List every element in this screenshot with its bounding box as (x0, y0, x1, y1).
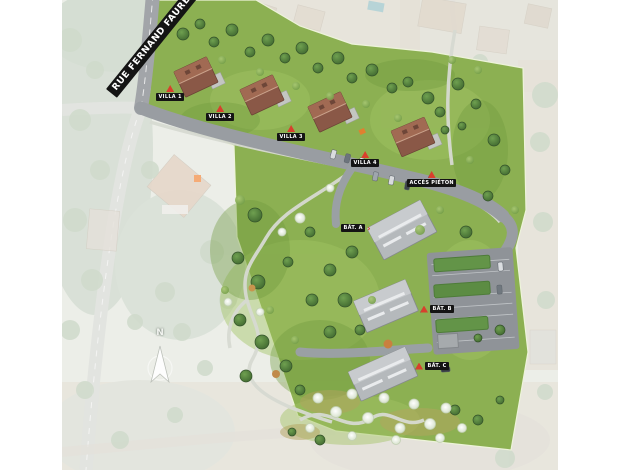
compass-north-label: N (142, 328, 178, 338)
marker-label: ACCÈS PIÉTON (407, 179, 456, 187)
arrow-right-icon: › (367, 226, 370, 231)
marker-villa-1: VILLA 1 (156, 85, 184, 101)
marker-label: BÂT. A (341, 224, 365, 232)
developer-pin-icon (415, 363, 423, 370)
developer-pin-icon (420, 306, 428, 313)
marker-label: VILLA 4 (351, 159, 379, 167)
marker-villa-4: VILLA 4 (351, 151, 379, 167)
developer-pin-icon (166, 85, 174, 92)
marker-label: BÂT. C (425, 362, 449, 370)
aerial-masterplan-image: RUE FERNAND FAURÉ N VILLA 1 VILLA 2 VILL… (0, 0, 640, 470)
developer-pin-icon (428, 171, 436, 178)
marker-label: VILLA 3 (277, 133, 305, 141)
marker-bat-b: BÂT. B (420, 305, 454, 313)
marker-label: VILLA 1 (156, 93, 184, 101)
marker-label: BÂT. B (430, 305, 454, 313)
compass: N (142, 328, 178, 338)
marker-villa-2: VILLA 2 (206, 105, 234, 121)
developer-pin-icon (287, 125, 295, 132)
marker-bat-a: BÂT. A › (341, 224, 371, 232)
developer-pin-icon (361, 151, 369, 158)
site-plan-rendering (0, 0, 640, 470)
marker-villa-3: VILLA 3 (277, 125, 305, 141)
marker-acces-pieton: ACCÈS PIÉTON (407, 171, 456, 187)
developer-pin-icon (216, 105, 224, 112)
marker-label: VILLA 2 (206, 113, 234, 121)
marker-bat-c: BÂT. C (415, 362, 449, 370)
